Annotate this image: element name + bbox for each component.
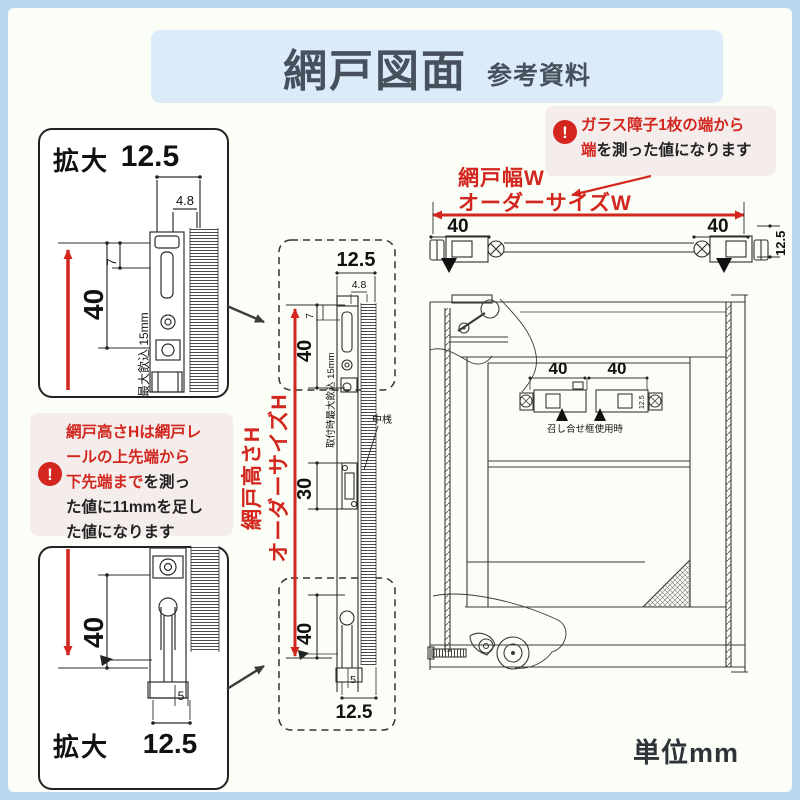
screen-width-line2: オーダーサイズW	[458, 191, 632, 216]
screen-width-line1: 網戸幅W	[458, 166, 632, 191]
screen-width-label: 網戸幅W オーダーサイズW	[458, 166, 632, 216]
page-background: 網戸図面 参考資料 ! ガラス障子1枚の端から端を測った値になります ! 網戸高…	[0, 0, 800, 800]
callout-line: 下先端まで	[66, 474, 144, 491]
callout-line: た値に11mmを足し	[66, 499, 203, 516]
callout-line: を測っ	[144, 474, 191, 491]
unit-note: 単位mm	[633, 731, 739, 770]
callout-line: た値になります	[66, 524, 175, 541]
screen-height-line2: オーダーサイズH	[266, 393, 293, 562]
zoom-label-bottom: 拡大	[53, 727, 109, 764]
title-banner: 網戸図面 参考資料	[151, 30, 723, 103]
callout-screen-height-note: ! 網戸高さHは網戸レールの上先端から下先端までを測った値に11mmを足した値に…	[30, 413, 233, 536]
page-title: 網戸図面	[283, 35, 467, 99]
detail-box-top: 拡大	[38, 128, 229, 398]
page-subtitle: 参考資料	[487, 56, 591, 92]
callout-line: 網戸高さHは網戸レ	[66, 424, 201, 441]
callout-line: を測った値になります	[597, 142, 752, 159]
callout-text: 網戸高さHは網戸レールの上先端から下先端までを測った値に11mmを足した値になり…	[66, 420, 227, 545]
screen-height-label: 網戸高さH オーダーサイズH	[238, 303, 294, 653]
zoom-label-top: 拡大	[53, 141, 109, 178]
callout-line: ールの上先端から	[66, 449, 190, 466]
alert-icon: !	[38, 462, 62, 486]
callout-line: 端	[581, 142, 597, 159]
detail-box-bottom: 拡大	[38, 546, 229, 790]
alert-icon: !	[553, 120, 577, 144]
callout-line: ガラス障子1枚の端から	[581, 117, 744, 134]
screen-height-line1: 網戸高さH	[239, 426, 266, 530]
callout-text: ガラス障子1枚の端から端を測った値になります	[581, 113, 770, 163]
